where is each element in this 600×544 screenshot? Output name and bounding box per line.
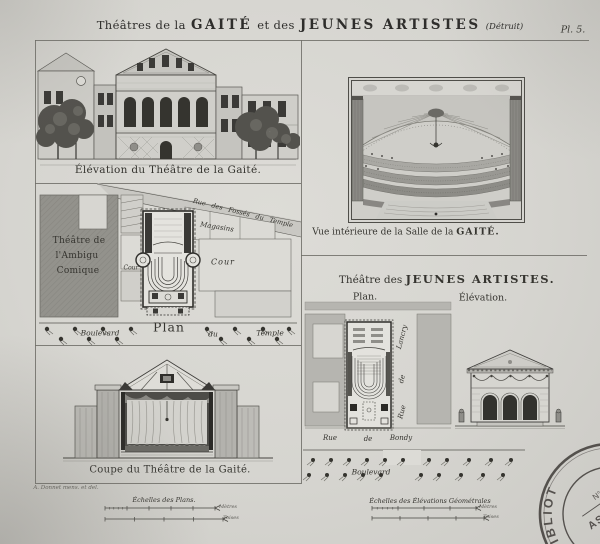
- title-mid: et des: [257, 18, 295, 32]
- label-cour: Cour: [211, 258, 235, 267]
- library-stamp: ★ BIBLIOT N° ASSOCI DE: [530, 442, 600, 544]
- interior-view-frame: [348, 77, 525, 223]
- gaite-elevation-drawing: [36, 41, 300, 180]
- gaite-plan-caption: Plan: [153, 320, 185, 335]
- scale-elevations-toises: Toises: [483, 514, 499, 520]
- label-cour-small: Cour: [124, 265, 139, 272]
- jeunes-header-main: JEUNES ARTISTES.: [406, 272, 556, 286]
- label-rue-bondy-bondy: Bondy: [390, 434, 412, 442]
- gaite-coupe-caption: Coupe du Théâtre de la Gaité.: [89, 465, 250, 476]
- label-rue-bondy-rue: Rue: [323, 434, 337, 442]
- label-boulevard-jeunes: Boulevard: [352, 468, 391, 477]
- divider-line: [35, 345, 301, 346]
- stamp-number-label: N°: [591, 489, 600, 502]
- label-boulevard: Boulevard: [81, 329, 120, 338]
- title-destroyed: (Détruit): [486, 22, 524, 32]
- scale-plans-toises: Toises: [223, 515, 239, 521]
- scale-plans-title: Échelles des Plans.: [132, 496, 195, 504]
- title-gaite: GAITÉ: [191, 17, 252, 33]
- interior-caption-prefix: Vue intérieure de la Salle de la: [312, 228, 453, 238]
- title-prefix: Théâtres de la: [97, 18, 186, 32]
- scale-elevations-metres: Mètres: [479, 504, 497, 510]
- scale-plans-metres: Mètres: [219, 504, 237, 510]
- jeunes-header-prefix: Théâtre des: [339, 274, 402, 286]
- label-rue-bondy-de: de: [364, 435, 373, 443]
- divider-line: [35, 483, 302, 484]
- jeunes-artistes-header: Théâtre des JEUNES ARTISTES.: [339, 272, 555, 286]
- gaite-coupe-drawing: [35, 348, 301, 468]
- interior-view-inner-frame: [351, 80, 522, 220]
- label-temple: Temple: [256, 329, 284, 338]
- interior-caption: Vue intérieure de la Salle de la GAITÉ.: [312, 227, 499, 238]
- plate-title: Théâtres de la GAITÉ et des JEUNES ARTIS…: [80, 14, 540, 33]
- gaite-elevation-caption: Élévation du Théâtre de la Gaité.: [75, 164, 261, 176]
- plate-number: Pl. 5.: [561, 25, 586, 36]
- interior-view-drawing: [352, 81, 521, 219]
- divider-line: [301, 40, 302, 483]
- engraver-credit: A. Donnet mens. et del.: [33, 485, 98, 491]
- engraved-plate: Théâtres de la GAITÉ et des JEUNES ARTIS…: [0, 0, 600, 544]
- title-artistes: JEUNES ARTISTES: [300, 17, 481, 33]
- divider-line: [301, 255, 587, 256]
- label-du: du: [208, 330, 218, 339]
- label-ambigu-1: Théâtre de: [53, 236, 106, 246]
- label-ambigu-2: l'Ambigu: [56, 251, 99, 261]
- scale-elevations-title: Échelles des Élévations Géométrales: [369, 497, 490, 505]
- interior-caption-name: GAITÉ.: [456, 227, 500, 238]
- jeunes-elevation-drawing: [455, 338, 565, 430]
- label-ambigu-3: Comique: [57, 266, 100, 276]
